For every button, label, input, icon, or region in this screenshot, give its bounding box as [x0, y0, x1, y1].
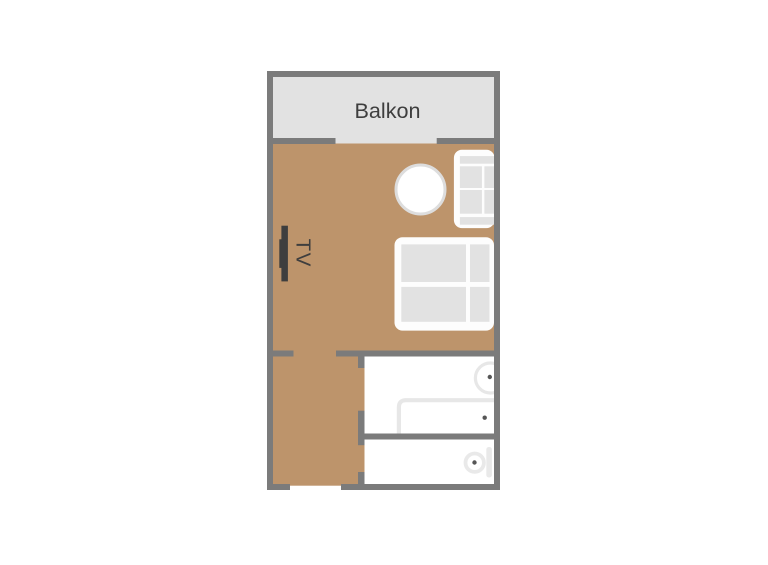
- svg-text:Balkon: Balkon: [354, 98, 420, 123]
- svg-text:TV: TV: [291, 239, 314, 268]
